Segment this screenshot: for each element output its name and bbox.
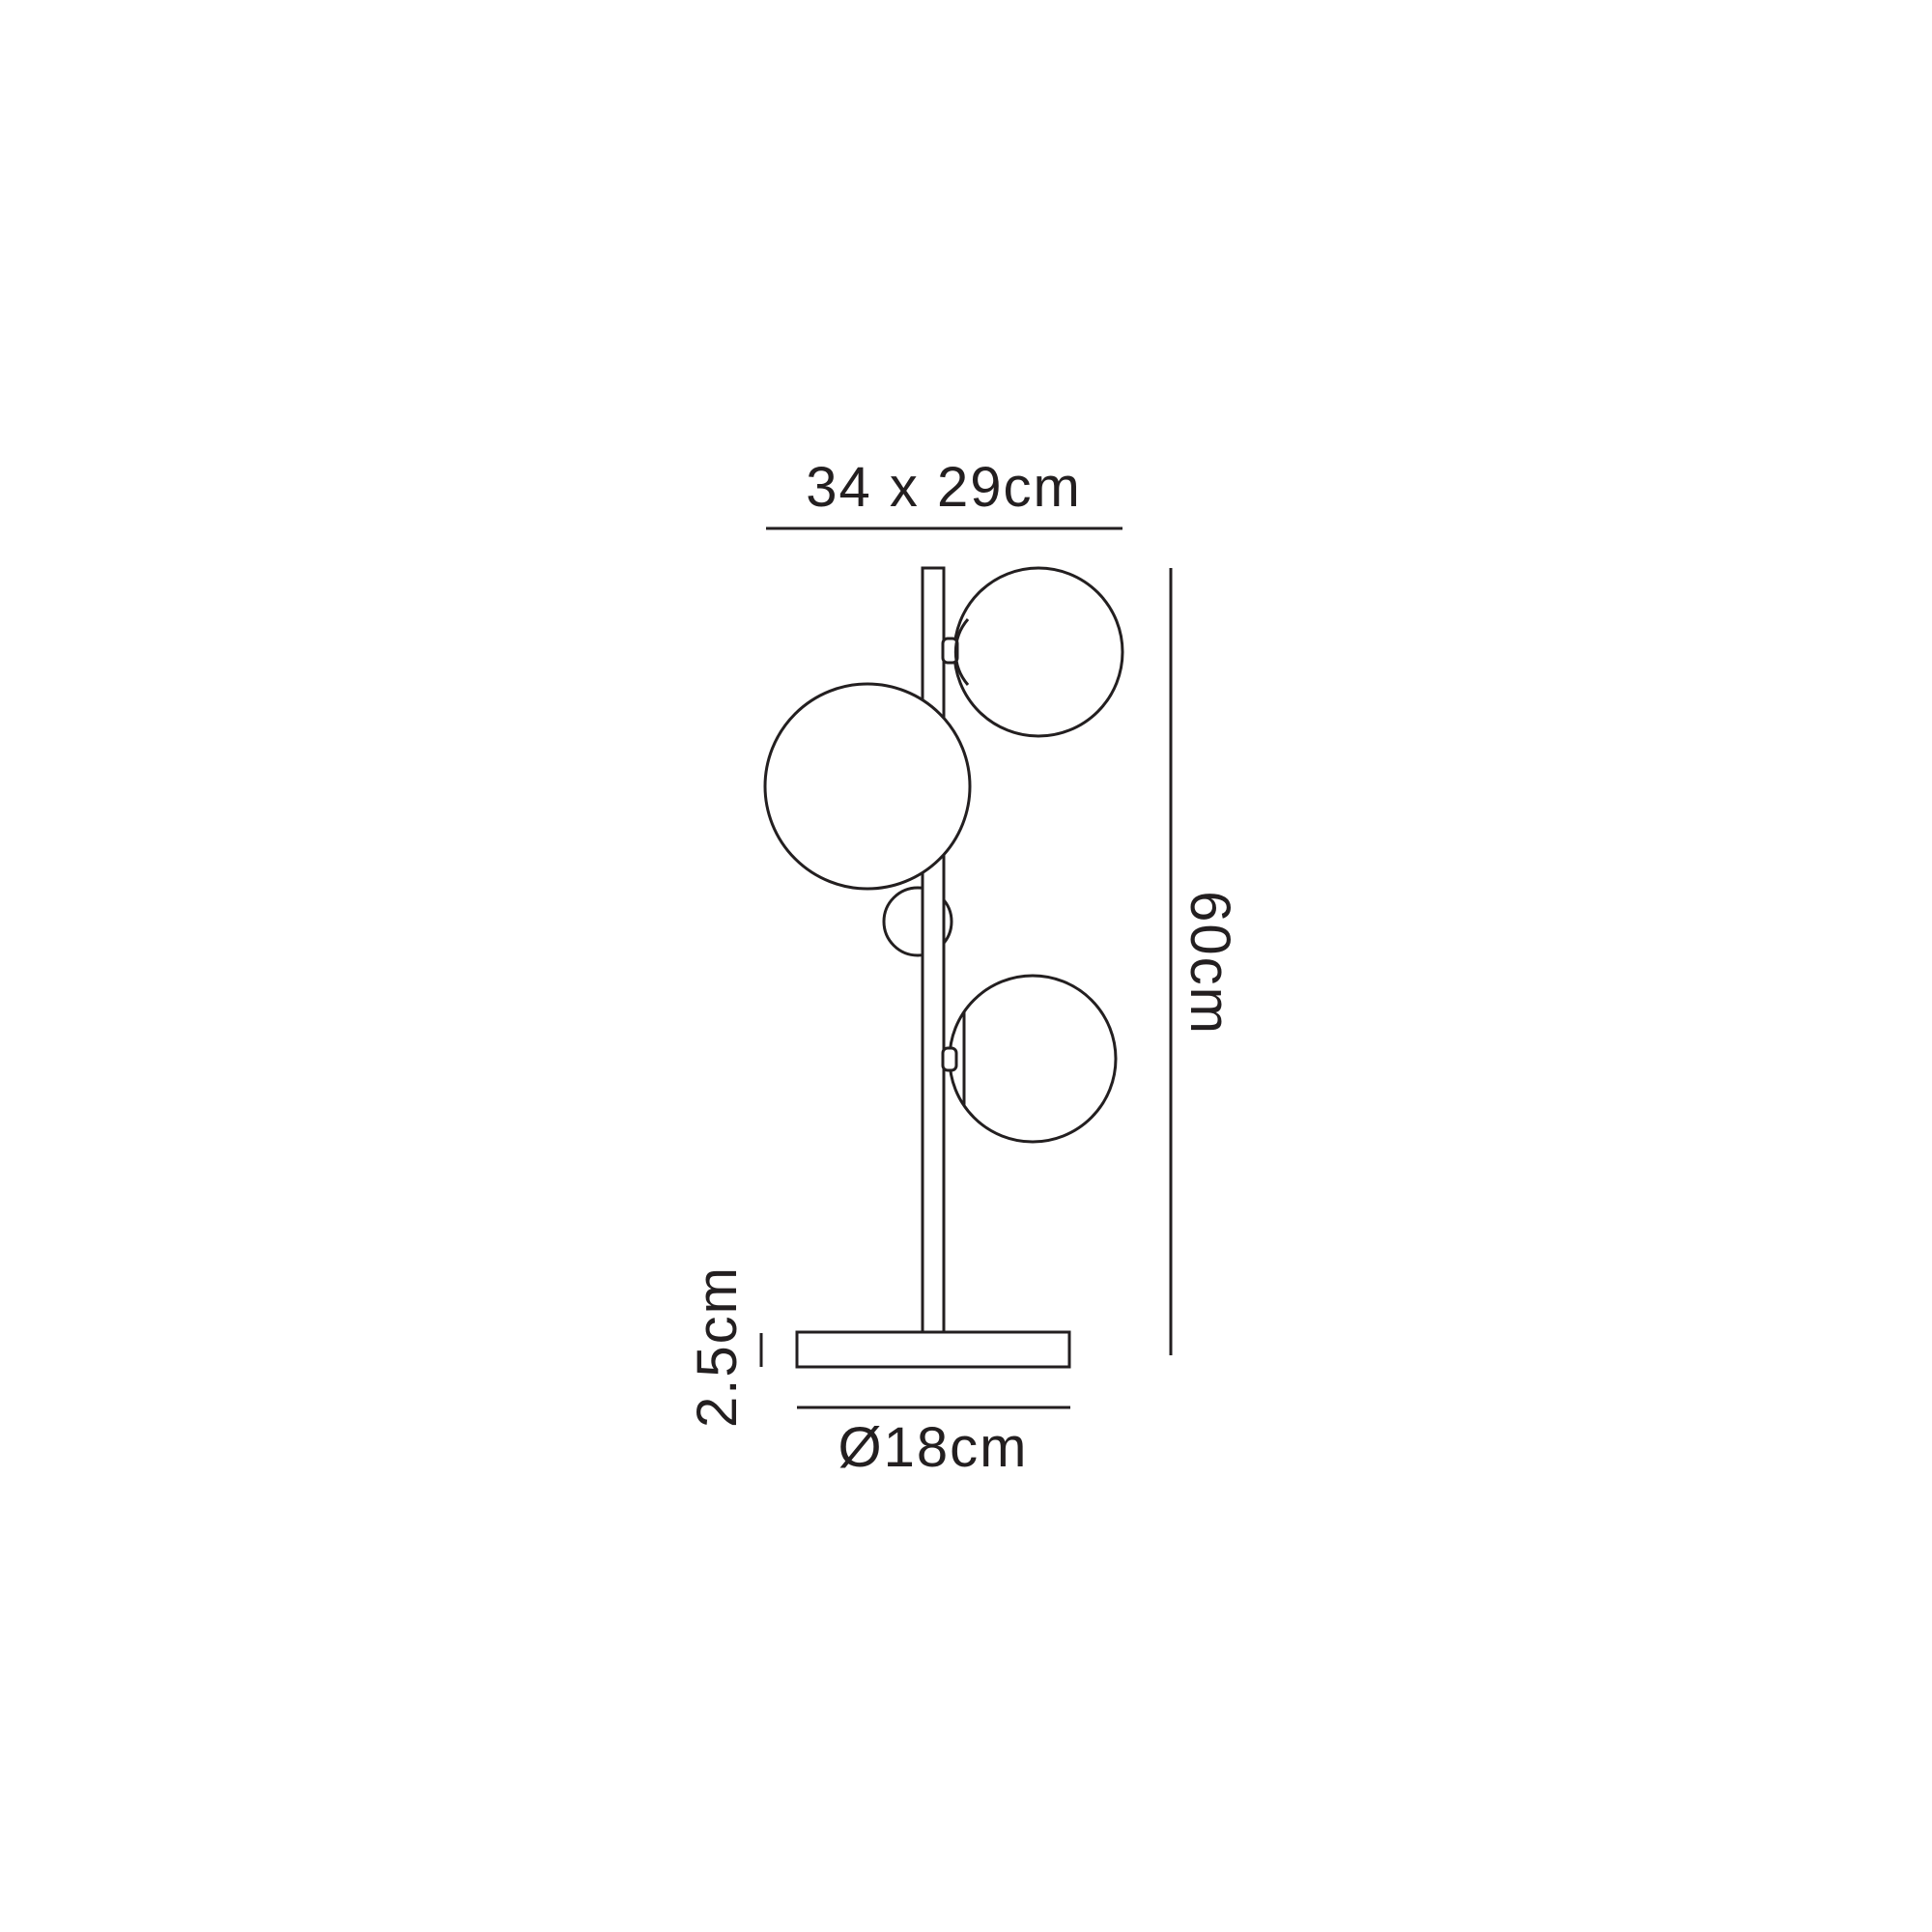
canvas-background	[0, 0, 1932, 1932]
lamp-dimension-drawing: 34 x 29cm 60cm 2.5cm Ø18cm	[0, 0, 1932, 1932]
globe-top-right	[954, 568, 1122, 736]
label-base-height: 2.5cm	[686, 1265, 749, 1428]
label-height: 60cm	[1179, 891, 1241, 1036]
lamp-base	[797, 1332, 1069, 1367]
label-base-diameter: Ø18cm	[838, 1416, 1029, 1479]
socket-bottom-right	[943, 1048, 956, 1070]
dimension-diagram: 34 x 29cm 60cm 2.5cm Ø18cm	[0, 0, 1932, 1932]
label-fixture-size: 34 x 29cm	[806, 456, 1082, 519]
lamp-pole	[923, 568, 944, 1332]
globe-bottom-right	[950, 976, 1116, 1142]
globe-large-left	[765, 684, 970, 889]
